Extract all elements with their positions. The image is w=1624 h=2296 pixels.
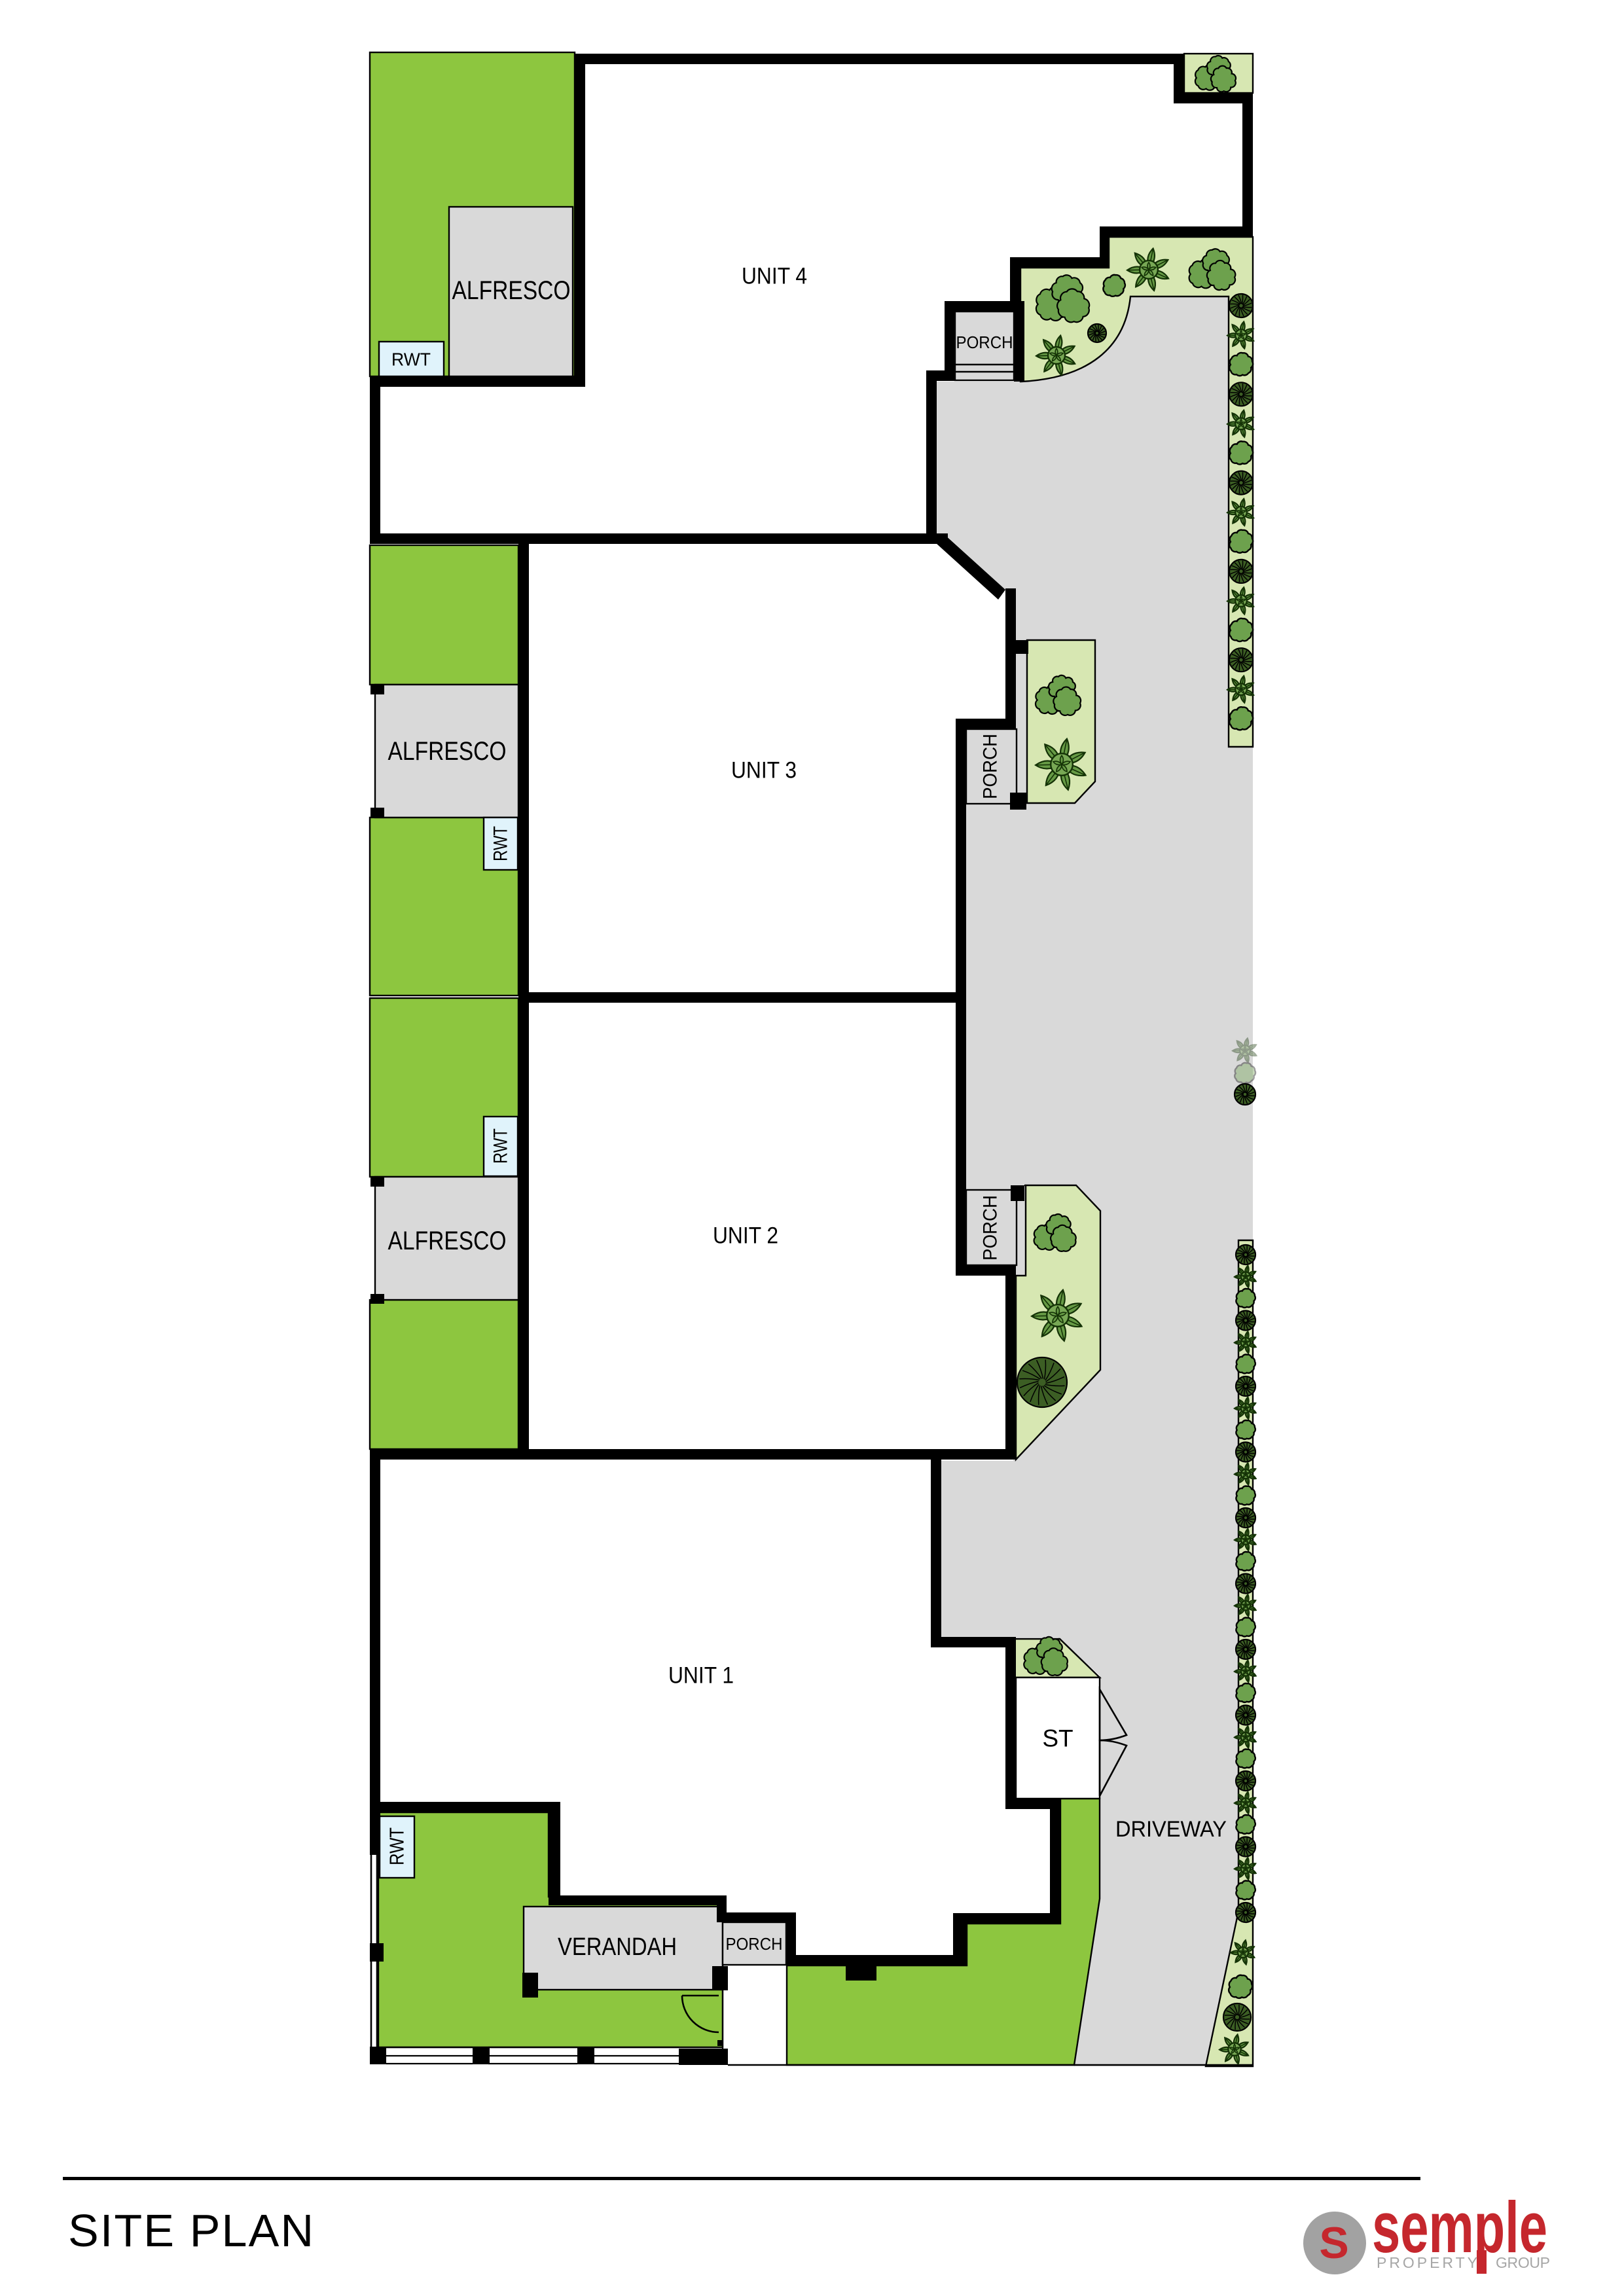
svg-text:UNIT 4: UNIT 4 <box>742 264 807 289</box>
svg-text:RWT: RWT <box>490 1128 512 1164</box>
svg-text:PORCH: PORCH <box>980 1195 1001 1261</box>
svg-text:ALFRESCO: ALFRESCO <box>388 737 507 766</box>
svg-text:RWT: RWT <box>490 826 512 861</box>
svg-text:PORCH: PORCH <box>956 332 1013 352</box>
svg-text:GROUP: GROUP <box>1496 2254 1550 2271</box>
svg-text:VERANDAH: VERANDAH <box>558 1933 677 1961</box>
svg-text:PORCH: PORCH <box>980 734 1001 799</box>
svg-text:DRIVEWAY: DRIVEWAY <box>1115 1817 1227 1842</box>
svg-text:SITE PLAN: SITE PLAN <box>68 2205 314 2256</box>
svg-text:UNIT 2: UNIT 2 <box>713 1223 778 1249</box>
svg-text:RWT: RWT <box>391 350 431 370</box>
svg-text:ALFRESCO: ALFRESCO <box>388 1227 507 1255</box>
svg-text:PORCH: PORCH <box>726 1934 783 1954</box>
svg-text:UNIT 3: UNIT 3 <box>731 758 797 783</box>
svg-text:ST: ST <box>1042 1725 1073 1752</box>
svg-text:UNIT 1: UNIT 1 <box>668 1663 734 1689</box>
svg-text:RWT: RWT <box>386 1827 408 1865</box>
svg-text:S: S <box>1319 2218 1348 2268</box>
svg-text:PROPERTY: PROPERTY <box>1377 2254 1477 2271</box>
svg-text:ALFRESCO: ALFRESCO <box>452 276 571 305</box>
